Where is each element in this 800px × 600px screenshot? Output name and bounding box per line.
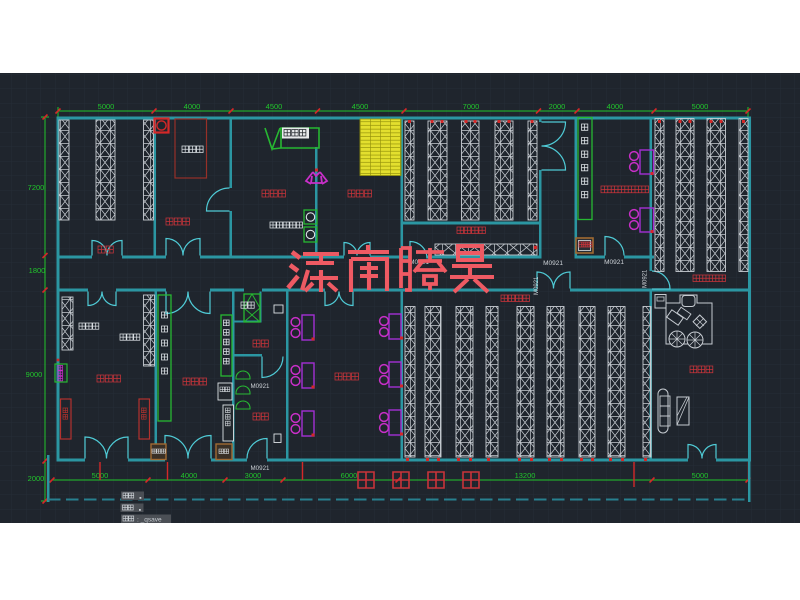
svg-text:M0921: M0921 [643,269,649,288]
svg-text:4500: 4500 [352,102,369,111]
svg-text:4000: 4000 [607,102,624,111]
svg-text:: _qsave: : _qsave [137,517,162,524]
svg-text:4500: 4500 [266,102,283,111]
svg-text:5000: 5000 [692,471,709,480]
svg-text:13200: 13200 [515,471,536,480]
svg-text:M0921: M0921 [251,465,270,472]
svg-text:1800: 1800 [29,266,46,275]
svg-text:7000: 7000 [463,102,480,111]
svg-text:7200: 7200 [28,183,45,192]
svg-text:4000: 4000 [181,471,198,480]
svg-text:M0921: M0921 [604,259,624,266]
svg-text:9000: 9000 [26,370,43,379]
svg-text:2000: 2000 [28,474,45,483]
svg-text:5000: 5000 [98,102,115,111]
svg-text:6000: 6000 [341,471,358,480]
svg-text:M0921: M0921 [543,260,563,267]
svg-text:5000: 5000 [692,102,709,111]
svg-text:2000: 2000 [549,102,566,111]
svg-text:4000: 4000 [184,102,201,111]
svg-text:M0921: M0921 [534,276,540,295]
svg-text:M0921: M0921 [251,383,270,390]
svg-text:3000: 3000 [245,471,262,480]
